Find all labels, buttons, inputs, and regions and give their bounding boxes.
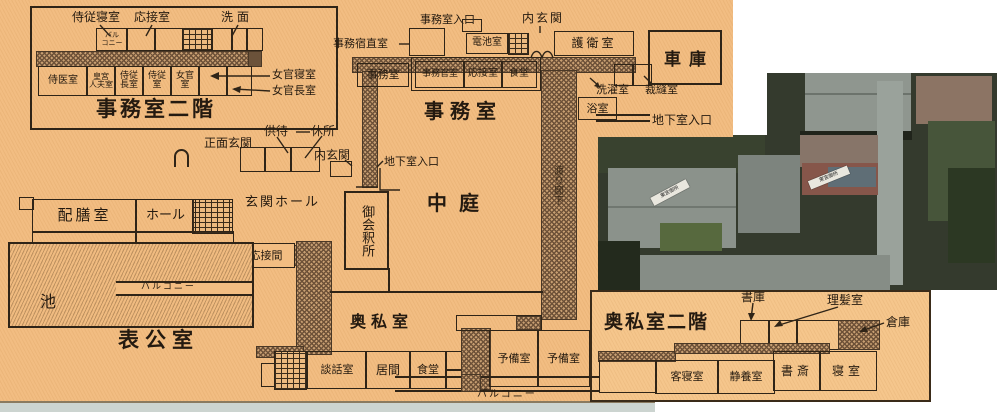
- label-barber: 理髪室: [827, 294, 863, 307]
- photo-trees-bottomleft: [598, 241, 640, 290]
- photo-roof-brown-tr: [916, 76, 992, 124]
- office-entrance-door: [462, 19, 482, 32]
- label-sewing: 裁縫室: [645, 84, 678, 96]
- label-garage: 車庫: [656, 45, 714, 70]
- label-ladies-bedroom: 女官寝室: [272, 69, 316, 81]
- room-hall: ホール: [135, 199, 196, 233]
- room-guard: 護衛室: [554, 31, 634, 56]
- label-balcony-west: バルコニー: [141, 283, 196, 292]
- stairs-private: [274, 351, 307, 390]
- room-2f-cell: [246, 28, 263, 51]
- spare-top-hatch: [516, 316, 541, 330]
- corridor-office-vertical: [362, 71, 378, 188]
- room-talk: 談話室: [307, 351, 367, 389]
- room-study: 書斎: [773, 351, 821, 391]
- label-inner-entrance-top: 内玄関: [522, 12, 564, 25]
- room-bedroom: 寝室: [819, 351, 877, 391]
- label-pond: 池: [40, 294, 56, 311]
- room-2f-cell: [126, 28, 156, 51]
- room-serving: 配膳室: [32, 199, 137, 233]
- room-chief-chamberlain: 侍従 長室: [114, 66, 144, 96]
- label-basement-entrance-mid: 地下室入口: [384, 156, 439, 168]
- basement-steps-line2: [596, 120, 650, 122]
- wall-2fp-right: [838, 320, 880, 350]
- label-reception-2f: 応接室: [134, 11, 170, 24]
- room-palace-laborer: 皇宮 人夫室: [86, 66, 116, 96]
- photo-white-gap: [733, 73, 767, 135]
- room-greeting: 御会釈所: [344, 191, 389, 270]
- room-bath: 浴室: [578, 97, 617, 120]
- wall-private-west: [296, 241, 332, 355]
- room-2f-cell: [198, 66, 228, 96]
- label-night-duty: 事務宿直室: [333, 38, 388, 50]
- label-covered-corridor: 渡り廊下: [551, 165, 562, 205]
- photo-roof-bottom: [640, 255, 890, 290]
- title-private-2f: 奥私室二階: [604, 313, 709, 333]
- room-2f-cell: [154, 28, 184, 51]
- room-officer: 事務官室: [415, 61, 465, 88]
- label-rest-place: 休所: [311, 125, 335, 138]
- photo-green-patch: [660, 223, 722, 251]
- room-physician: 侍医室: [38, 66, 88, 96]
- stairs-2f: [182, 28, 213, 51]
- room-rest: 静養室: [717, 360, 775, 394]
- room-chamberlain: 侍従 室: [142, 66, 172, 96]
- label-laundry: 洗濯室: [596, 84, 629, 96]
- bottom-strip: [0, 401, 655, 412]
- label-warehouse: 倉庫: [886, 316, 910, 329]
- stairs-hall-upper: [192, 199, 233, 234]
- room-reception-1f: 応接室: [463, 61, 503, 88]
- floorplan-image: 東宮御所 東宮御所 侍従寝室 応接室 洗面 バル コニー 侍医室 皇宮 人夫室 …: [0, 0, 1000, 412]
- room-1f-cell: [409, 28, 445, 56]
- label-washroom: 洗面: [221, 11, 253, 24]
- title-office-2f: 事務室二階: [96, 98, 216, 120]
- room-2fp-blank: [599, 360, 657, 393]
- label-book-storage: 書庫: [741, 291, 765, 304]
- photo-roof-midleft: [738, 155, 800, 233]
- basement-steps-line1: [596, 114, 650, 116]
- label-balcony-south: バルコニー: [477, 390, 537, 401]
- label-entrance-hall: 玄関ホール: [245, 196, 320, 210]
- label-attendants-wait: 供待: [264, 125, 288, 138]
- label-inner-entrance-mid: 内玄関: [314, 149, 350, 162]
- room-dining-1f: 食堂: [501, 61, 537, 88]
- tick-box-private: [261, 363, 275, 387]
- label-basement-entrance-right: 地下室入口: [652, 114, 712, 127]
- label-chief-lady-room: 女官長室: [272, 85, 316, 97]
- room-guest-bedroom: 客寝室: [655, 360, 719, 394]
- room-battery: 電池室: [466, 33, 508, 54]
- corridor-2f: [36, 51, 250, 67]
- photo-roof-left-ridge: [608, 206, 736, 208]
- room-balcony-2f: バル コニー: [96, 28, 128, 51]
- room-office-small: 事務室: [357, 63, 409, 87]
- room-court-lady: 女官 室: [170, 66, 200, 96]
- stairs-office: [508, 33, 529, 55]
- entrance-arch: [174, 149, 189, 167]
- inner-entrance-box: [330, 161, 352, 177]
- waiting-cell: [240, 147, 266, 172]
- label-chamberlain-bedroom: 侍従寝室: [72, 11, 120, 24]
- garage-box: 車庫: [648, 30, 722, 85]
- title-office-1f: 事務室: [424, 101, 502, 122]
- corridor-2f-end: [248, 51, 262, 67]
- waiting-cell: [264, 147, 292, 172]
- title-courtyard: 中庭: [427, 193, 491, 214]
- room-2f-cell: [226, 66, 252, 96]
- title-public-rooms: 表公室: [118, 329, 199, 351]
- title-private-1f: 奥私室: [350, 314, 413, 331]
- photo-trees-right-dark: [948, 168, 995, 263]
- room-2f-cell: [211, 28, 233, 51]
